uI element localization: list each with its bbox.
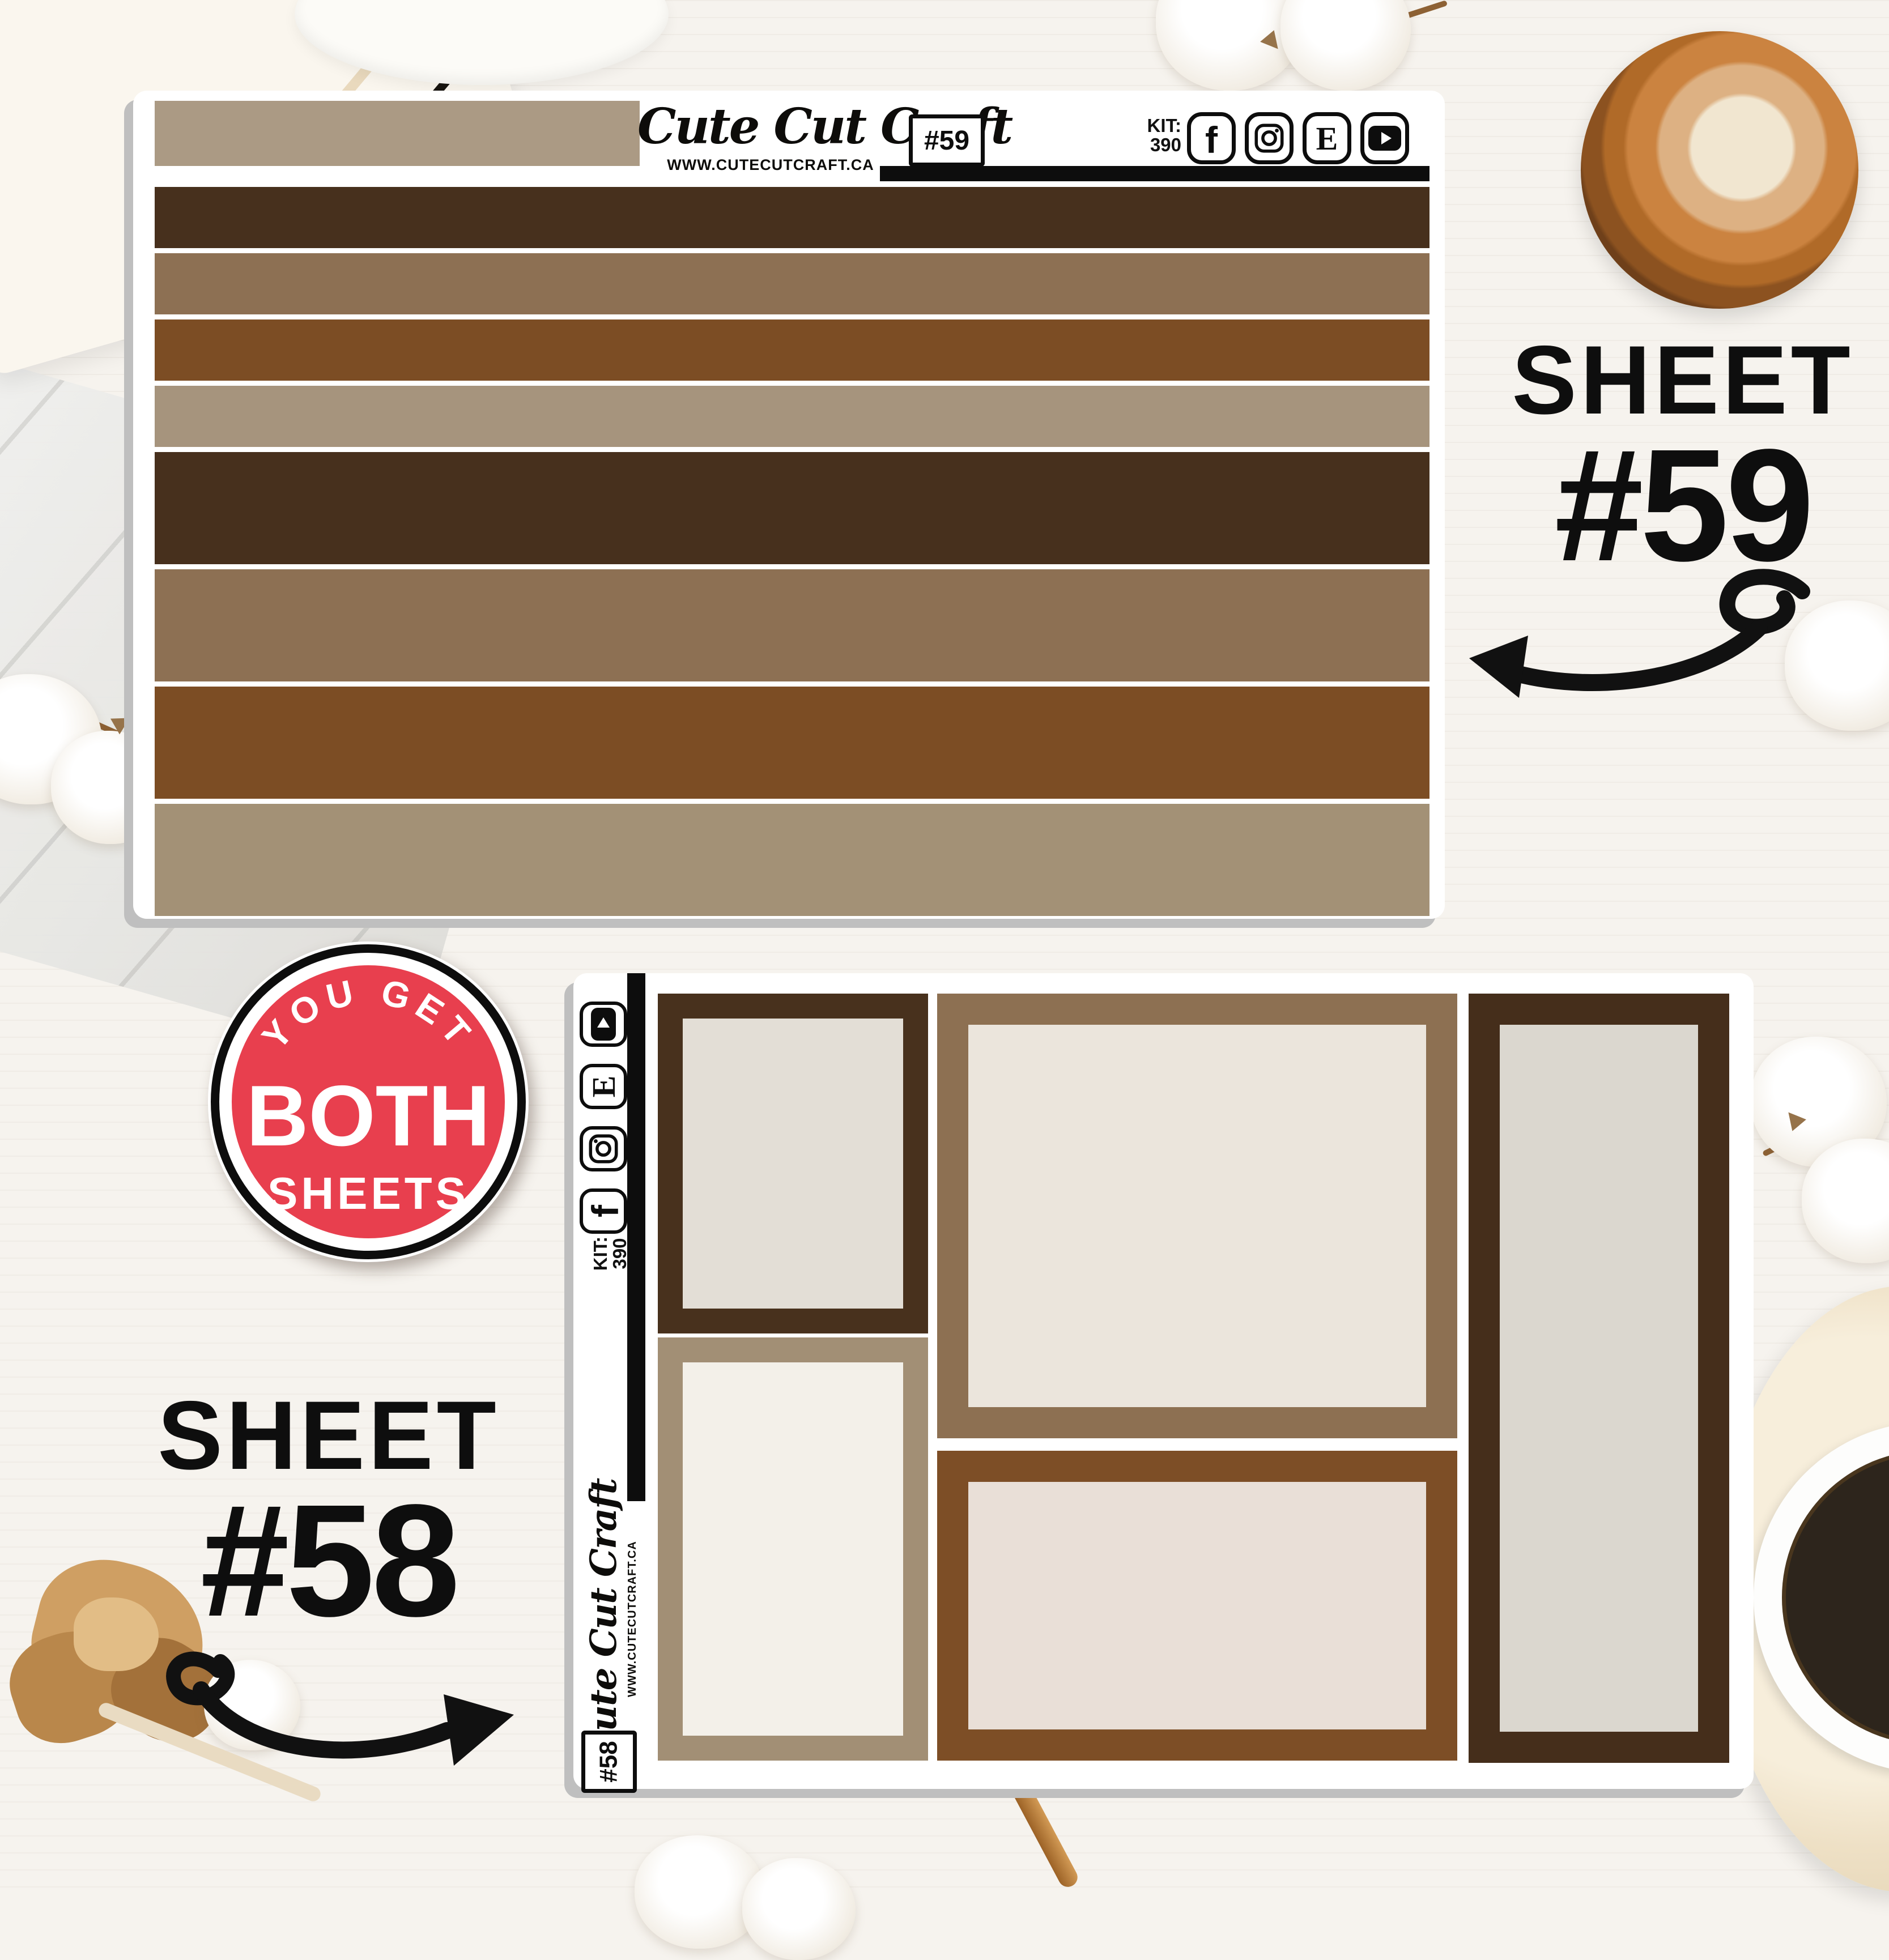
kit-label: KIT: — [1091, 116, 1181, 135]
sheet-59-label-number: #59 — [1484, 425, 1881, 585]
sticker-box-middle-top — [937, 994, 1457, 1438]
facebook-icon: f — [1187, 112, 1236, 164]
youtube-icon — [1360, 112, 1409, 164]
brand-logo: Cute Cut Craft — [583, 1479, 625, 1759]
etsy-icon: E — [1303, 112, 1351, 164]
kit-number-block: KIT: 390 — [1091, 116, 1181, 155]
header-swatch — [155, 101, 640, 166]
sheet59-stripe-3 — [155, 319, 1429, 381]
kit-label: KIT: — [591, 1237, 610, 1271]
youtube-icon — [580, 1002, 627, 1047]
sheet59-stripe-7 — [155, 687, 1429, 799]
sheet59-stripe-8 — [155, 804, 1429, 916]
sticker-box-right — [1469, 994, 1729, 1763]
svg-text:SHEETS: SHEETS — [267, 1168, 469, 1218]
you-get-both-sheets-badge: YOU GET BOTH SHEETS — [208, 941, 529, 1262]
sheet-58-label-number: #58 — [142, 1481, 516, 1641]
sheet59-stripe-6 — [155, 569, 1429, 681]
brand-website: WWW.CUTECUTCRAFT.CA — [626, 1541, 639, 1697]
sticker-box-middle-bottom — [937, 1451, 1457, 1761]
sheet59-stripe-2 — [155, 253, 1429, 314]
sheet-58-label: SHEET #58 — [142, 1387, 516, 1641]
sticker-box-left-bottom — [658, 1337, 928, 1761]
kit-number: 390 — [610, 1238, 629, 1269]
sheet-number-box-58: #58 — [581, 1731, 637, 1793]
sheet-number-58: #58 — [595, 1741, 623, 1782]
sheet-58-label-word: SHEET — [142, 1387, 516, 1484]
sheet-number-box-59: #59 — [909, 114, 985, 167]
sheet59-stripes — [155, 187, 1429, 916]
kit-number-block-rotated: KIT: 390 — [571, 1217, 650, 1290]
sheet59-stripe-5 — [155, 452, 1429, 564]
arrow-to-sheet-58-icon — [161, 1623, 535, 1793]
instagram-icon — [1245, 112, 1294, 164]
sticker-box-left-top — [658, 994, 928, 1333]
sticker-sheet-58: Ef KIT: 390 Cute Cut Craft WWW.CUTECUTCR… — [573, 973, 1754, 1789]
brand-website: WWW.CUTECUTCRAFT.CA — [637, 156, 904, 174]
brand-logo: Cute Cut Craft — [637, 99, 904, 155]
arrow-to-sheet-59-icon — [1442, 566, 1827, 736]
product-image-canvas: { "brand": { "name": "Cute Cut Craft", "… — [0, 0, 1889, 1889]
sheet-59-label: SHEET #59 — [1484, 331, 1881, 585]
sheet-number-59: #59 — [924, 125, 969, 156]
sheet-59-label-word: SHEET — [1484, 331, 1881, 429]
kit-number: 390 — [1091, 135, 1181, 155]
header-black-bar — [880, 166, 1429, 181]
sheet59-stripe-4 — [155, 386, 1429, 447]
sheet59-stripe-1 — [155, 187, 1429, 248]
etsy-icon: E — [580, 1064, 627, 1109]
svg-text:BOTH: BOTH — [246, 1068, 491, 1164]
copper-bowl-image — [1581, 31, 1858, 309]
brand-logo-block-rotated: Cute Cut Craft WWW.CUTECUTCRAFT.CA — [571, 1500, 650, 1738]
svg-text:YOU GET: YOU GET — [254, 970, 483, 1056]
social-icon-row: fE — [1187, 112, 1409, 164]
social-icon-column: Ef — [581, 1000, 626, 1235]
badge-text: YOU GET BOTH SHEETS — [208, 941, 529, 1262]
instagram-icon — [580, 1126, 627, 1171]
brand-logo-block: Cute Cut Craft WWW.CUTECUTCRAFT.CA — [637, 99, 904, 174]
sticker-sheet-59: Cute Cut Craft WWW.CUTECUTCRAFT.CA #59 K… — [133, 91, 1445, 919]
